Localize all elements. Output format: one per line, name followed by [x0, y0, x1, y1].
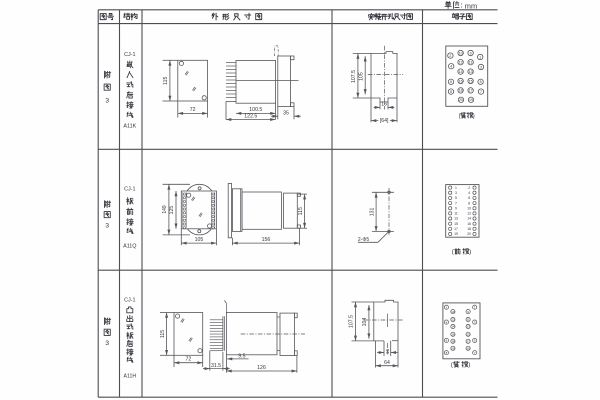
svg-text:19: 19: [466, 347, 470, 351]
svg-text:20: 20: [451, 347, 455, 351]
svg-text:115: 115: [163, 76, 169, 84]
svg-text:mm: mm: [465, 1, 477, 10]
svg-text:19: 19: [469, 98, 473, 102]
svg-text:15: 15: [466, 333, 470, 337]
svg-text:107.5: 107.5: [349, 315, 355, 328]
svg-text:115: 115: [160, 330, 166, 338]
svg-text:18: 18: [451, 340, 455, 344]
svg-text:16: 16: [451, 333, 455, 337]
svg-text:15: 15: [469, 79, 473, 83]
svg-text:31.5: 31.5: [211, 363, 221, 369]
svg-text:126: 126: [257, 365, 266, 371]
svg-text:9: 9: [470, 51, 472, 55]
svg-text:3: 3: [480, 65, 482, 69]
svg-text:3: 3: [105, 340, 109, 347]
svg-text:11: 11: [454, 212, 458, 216]
svg-text:8: 8: [450, 90, 452, 94]
svg-text:[64]: [64]: [380, 118, 389, 124]
svg-text:105: 105: [195, 237, 204, 243]
svg-text:10: 10: [451, 310, 455, 314]
svg-text:20: 20: [459, 98, 463, 102]
svg-text:115: 115: [298, 207, 304, 215]
svg-text:149: 149: [162, 205, 168, 214]
svg-text:3: 3: [455, 191, 457, 195]
svg-text:6: 6: [468, 196, 470, 200]
svg-text:16: 16: [381, 102, 387, 108]
svg-text:CJ-1: CJ-1: [124, 186, 135, 192]
svg-text:A11Q: A11Q: [123, 244, 136, 250]
svg-text:5: 5: [455, 196, 457, 200]
svg-text:15: 15: [454, 222, 458, 226]
svg-text:125: 125: [169, 206, 175, 215]
svg-text:107.5: 107.5: [351, 70, 357, 83]
svg-text:17: 17: [454, 227, 458, 231]
svg-text:12: 12: [451, 318, 455, 322]
svg-text:72: 72: [190, 107, 196, 113]
svg-text:9.5: 9.5: [238, 353, 245, 359]
svg-text:16: 16: [467, 222, 471, 226]
svg-text:122.5: 122.5: [244, 114, 257, 120]
svg-text:18: 18: [467, 227, 471, 231]
svg-text:17: 17: [466, 340, 470, 344]
svg-text:12: 12: [459, 61, 463, 65]
svg-text:12: 12: [467, 212, 471, 216]
svg-text:): ): [473, 114, 475, 120]
svg-text:18: 18: [459, 89, 463, 93]
svg-text:7: 7: [480, 90, 482, 94]
svg-text:35: 35: [283, 111, 289, 117]
svg-text:1: 1: [479, 55, 481, 59]
svg-text:14: 14: [467, 217, 471, 221]
svg-text:131: 131: [369, 207, 375, 216]
svg-text:13: 13: [466, 325, 470, 329]
svg-text:): ): [469, 249, 471, 256]
svg-text:4: 4: [468, 191, 470, 195]
svg-text:13: 13: [469, 70, 473, 74]
svg-text:13: 13: [454, 217, 458, 221]
svg-text:): ): [468, 362, 470, 369]
svg-text:2-Φ5: 2-Φ5: [358, 237, 369, 243]
svg-text:1: 1: [455, 186, 457, 190]
svg-text:10: 10: [459, 51, 463, 55]
svg-text:17: 17: [469, 89, 473, 93]
svg-text:156: 156: [262, 237, 271, 243]
svg-text:7: 7: [455, 201, 457, 205]
svg-text:16: 16: [385, 349, 390, 355]
svg-text:5: 5: [480, 80, 482, 84]
svg-text:3: 3: [105, 97, 109, 104]
svg-text:6: 6: [450, 80, 452, 84]
svg-text:9: 9: [455, 206, 457, 210]
svg-text:20: 20: [467, 232, 471, 236]
svg-text:2: 2: [468, 186, 470, 190]
svg-text:100.5: 100.5: [249, 107, 262, 113]
svg-text:105: 105: [358, 72, 364, 81]
svg-text:14: 14: [451, 325, 455, 329]
svg-text:2: 2: [449, 54, 451, 58]
svg-text:CJ-1: CJ-1: [124, 52, 135, 58]
svg-text:A11H: A11H: [124, 373, 137, 379]
svg-text:11: 11: [469, 61, 473, 65]
svg-text:19: 19: [454, 232, 458, 236]
svg-text:14: 14: [459, 70, 463, 74]
svg-text:11: 11: [467, 318, 470, 322]
svg-text:4: 4: [450, 65, 452, 69]
svg-text:72: 72: [186, 357, 192, 363]
svg-text:3: 3: [105, 223, 109, 230]
svg-text:A11K: A11K: [123, 124, 136, 130]
svg-text:8: 8: [468, 201, 470, 205]
svg-text:(: (: [459, 114, 461, 120]
svg-text:CJ-1: CJ-1: [124, 298, 135, 304]
svg-text:104: 104: [362, 318, 368, 327]
svg-text:10: 10: [467, 206, 471, 210]
svg-text:64: 64: [384, 360, 390, 366]
svg-text:16: 16: [459, 79, 463, 83]
